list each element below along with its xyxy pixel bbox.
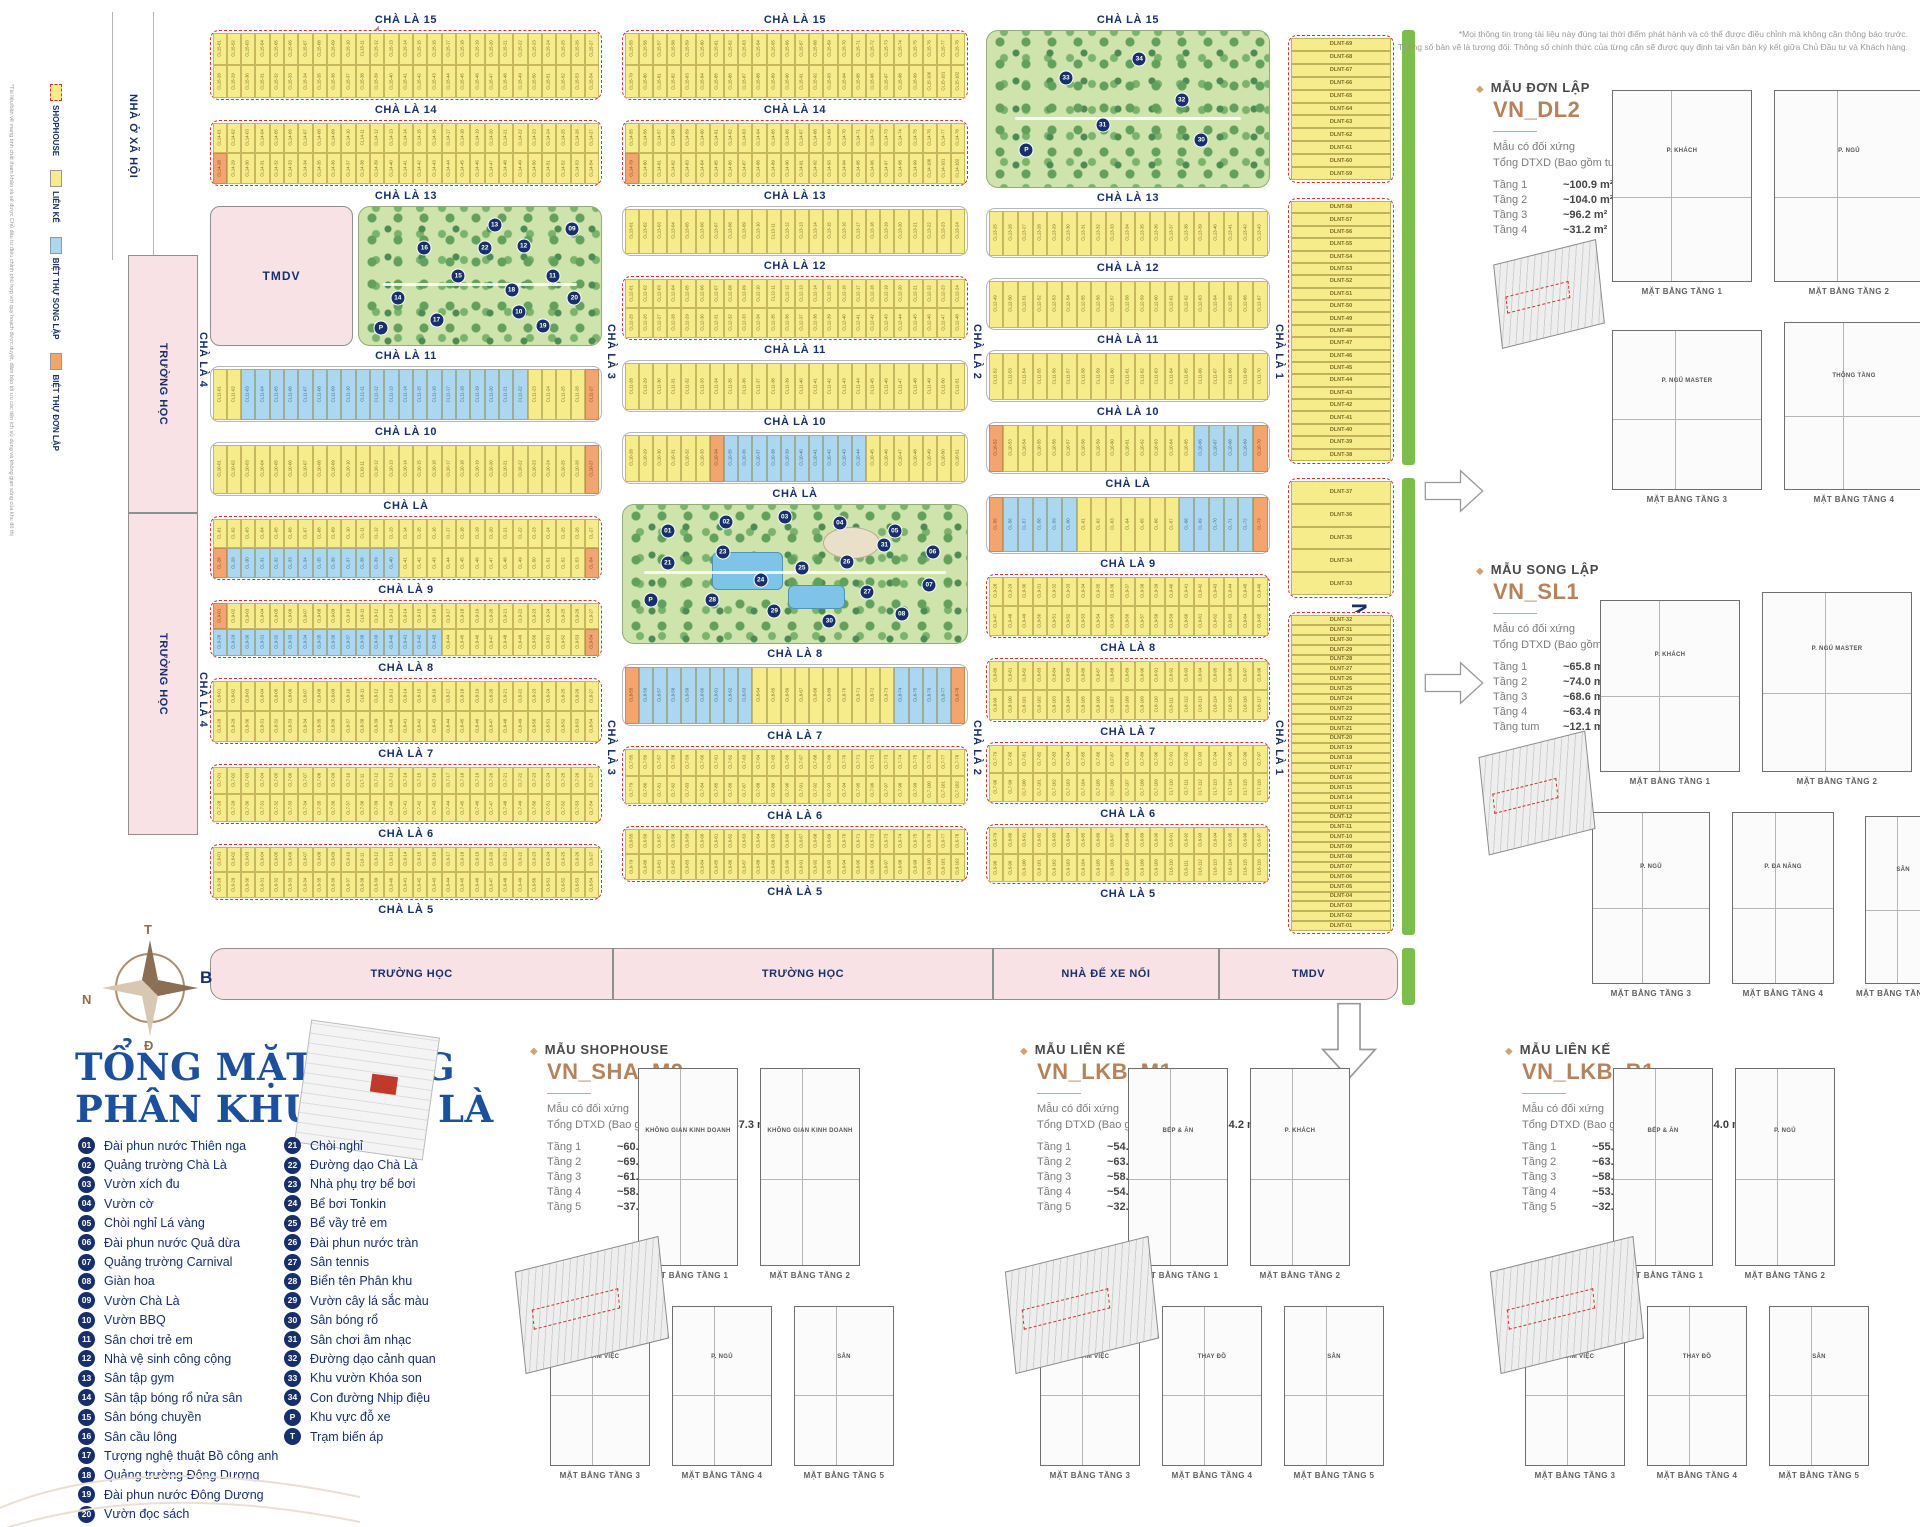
lot: CL15-42 [413,65,427,98]
lot: CL11-58 [1077,353,1092,400]
lot: CL15-95 [852,65,866,98]
lot: CL13-43 [1253,211,1268,256]
lot: CL6-95 [852,854,866,880]
lot: CL10-61 [1121,425,1136,472]
lot: CL11-56 [1047,353,1062,400]
lot: CL6-06 [284,847,298,873]
lot: CL9-18 [456,603,470,630]
lot-block: CL7-01CL7-02CL7-03CL7-04CL7-05CL7-06CL7-… [210,764,602,824]
lot: CL10-21 [499,445,513,494]
lot-row: CL-28CL-29CL-30CL-31CL-32CL-33CL-34CL-35… [213,548,600,578]
lot: CL7-04 [255,767,269,795]
park-path [644,571,947,574]
lot: CL10-24 [542,445,556,494]
lot: CL11-31 [667,363,681,410]
lot: CL10-54 [1018,425,1033,472]
lot-row: CL14-79CL14-80CL14-81CL14-82CL14-83CL14-… [625,153,966,184]
floorplan: KHÔNG GIAN KINH DOANHMẶT BẰNG TẦNG 2 [760,1068,860,1280]
lot: CL6-98 [894,854,908,880]
amenity-label: Đài phun nước tràn [310,1236,418,1250]
amenity-number: 28 [284,1273,301,1290]
lot: CL14-02 [227,123,241,154]
lot: CL8-96 [1224,661,1239,691]
floorplan: THAY ĐỒMẶT BẰNG TẦNG 4 [1162,1306,1262,1480]
lot: CL13-13 [795,209,809,254]
lot: CL8-107 [1106,690,1121,720]
lot: CL14-20 [485,123,499,154]
lot: CL-58 [1033,497,1048,552]
lot: CL10-18 [456,445,470,494]
lot: CL6-03 [241,847,255,873]
dlnt-lot: DLNT-67 [1291,64,1391,77]
lot: CL14-77 [937,123,951,154]
lot: CL13-34 [1121,211,1136,256]
amenity-item: 06Đài phun nước Quả dừa [78,1233,278,1252]
lot: CL6-96 [1238,827,1253,855]
lot: CL8-56 [639,667,653,724]
lot: CL7-85 [710,776,724,804]
floorplan-caption: MẶT BẰNG TẦNG 4 [1657,1471,1738,1480]
lot: CL-18 [456,519,470,549]
lot: CL7-09 [327,767,341,795]
lot-block: CL8-01CL8-02CL8-03CL8-04CL8-05CL8-06CL8-… [210,678,602,744]
lot: CL11-68 [1224,353,1239,400]
street-label: CHÀ LÀ 8 [210,662,602,678]
amenity-number: 21 [284,1137,301,1154]
lot: CL12-61 [1165,281,1180,328]
decorative-waves [0,1327,360,1527]
lot: CL8-99 [989,690,1004,720]
lot: CL15-91 [795,65,809,98]
amenity-badge: 13 [488,218,501,231]
lot: CL8-73 [880,667,894,724]
lot: CL7-40 [384,794,398,822]
lot: CL7-95 [852,776,866,804]
floor-label: Tầng 2 [547,1156,617,1171]
lot: CL9-49 [1018,606,1033,636]
lot: CL7-52 [556,794,570,822]
room-label: P. KHÁCH [1613,148,1751,154]
dashed-swatch-icon [50,84,62,101]
dlnt-lot: DLNT-66 [1291,77,1391,90]
dlnt-lot: DLNT-64 [1291,103,1391,116]
lot: CL15-01 [213,33,227,66]
lot: CL-36 [327,548,341,578]
lot: CL15-49 [513,65,527,98]
lot: CL6-91 [795,854,809,880]
model-header: ◆MẪU SHOPHOUSE [530,1042,720,1057]
lot: CL6-88 [752,854,766,880]
lot: CL9-34 [298,629,312,656]
lot: CL15-34 [298,65,312,98]
lot: CL11-66 [1194,353,1209,400]
lot: CL7-64 [752,749,766,777]
lot: CL9-46 [1253,577,1268,607]
lot: CL7-89 [767,776,781,804]
street-cha-la-2a: CHÀ LÀ 2 [971,292,983,412]
lot: CL7-88 [1121,745,1136,774]
lot: CL11-39 [781,363,795,410]
lot: CL-21 [499,519,513,549]
amenity-badge: 06 [926,545,939,558]
lot: CL11-70 [1253,353,1268,400]
lot: CL8-57 [653,667,667,724]
lot: CL6-33 [284,872,298,898]
lot: CL7-115 [1238,773,1253,802]
room-label: KHÔNG GIAN KINH DOANH [761,1128,859,1134]
lot: CL10-66 [1194,425,1209,472]
lot: CL6-46 [470,872,484,898]
lot: CL-64 [1121,497,1136,552]
amenity-badge: P [644,594,657,607]
lot: CL6-108 [1135,854,1150,882]
floorplan-caption: MẶT BẰNG TẦNG 5 [1779,1471,1860,1480]
lot: CL7-79 [625,776,639,804]
lot: CL-05 [270,519,284,549]
lot: CL10-11 [356,445,370,494]
facility-segment: TRƯỜNG HỌC [210,948,613,1000]
lot: CL15-52 [556,65,570,98]
lot: CL14-65 [767,123,781,154]
lot: CL9-07 [298,603,312,630]
lot: CL11-64 [1165,353,1180,400]
dlnt-lot: DLNT-37 [1291,481,1391,504]
lot-band-west: CHÀ LÀ 15CL15-01CL15-02CL15-03CL15-04CL1… [210,14,602,920]
lot: CL12-60 [1150,281,1165,328]
lot: CL7-20 [485,767,499,795]
lot: CL6-94 [1209,827,1224,855]
model-type-label: MẪU SONG LẬP [1491,562,1599,577]
lot: CL15-59 [681,33,695,66]
street-label: CHÀ LÀ 6 [210,828,602,844]
lot: CL10-15 [413,445,427,494]
lot: CL6-13 [384,847,398,873]
lot: CL8-87 [1091,661,1106,691]
lot: CL9-21 [499,603,513,630]
lot: CL12-47 [937,308,951,338]
lot: CL12-55 [1077,281,1092,328]
lot: CL8-80 [989,661,1004,691]
lot: CL7-57 [653,749,667,777]
lot: CL9-17 [442,603,456,630]
amenity-item: 07Quảng trường Carnival [78,1252,278,1271]
lot: CL12-18 [866,279,880,309]
lot: CL10-30 [653,435,667,482]
lot: CL15-61 [710,33,724,66]
lot: CL11-67 [1209,353,1224,400]
lot: CL11-63 [1150,353,1165,400]
lot: CL12-26 [639,308,653,338]
amenity-badge: 10 [512,305,525,318]
lot: CL14-24 [542,123,556,154]
lot: CL14-25 [556,123,570,154]
lot: CL9-60 [1179,606,1194,636]
lot: CL8-17 [442,681,456,712]
floorplan-caption: MẶT BẰNG TẦNG 3 [1050,1471,1131,1480]
dlnt-lot: DLNT-20 [1291,734,1391,744]
lot-row: CL8-28CL8-29CL8-30CL8-31CL8-32CL8-33CL8-… [213,711,600,742]
lot: CL10-16 [427,445,441,494]
lot: CL11-13 [384,369,398,420]
lot: CL12-63 [1194,281,1209,328]
lot: CL15-12 [370,33,384,66]
lot: CL7-113 [1209,773,1224,802]
lot: CL-68 [1179,497,1194,552]
amenity-label: Đài phun nước Thiên nga [104,1139,246,1153]
amenity-badge: 01 [661,525,674,538]
lot: CL6-10 [341,847,355,873]
lot: CL9-24 [542,603,556,630]
lot: CL10-09 [327,445,341,494]
model-header: ◆MẪU LIÊN KẾ [1020,1042,1210,1057]
lot: CL8-110 [1150,690,1165,720]
lot: CL7-83 [1047,745,1062,774]
lot-block: CL11-01CL11-02CL11-03CL11-04CL11-05CL11-… [210,366,602,422]
yellow-swatch-icon [50,170,62,187]
lot: CL7-02 [227,767,241,795]
lot: CL9-50 [1033,606,1048,636]
lot: CL10-55 [1033,425,1048,472]
lot: CL6-79 [989,827,1004,855]
lot: CL-41 [399,548,413,578]
lot: CL10-28 [625,435,639,482]
lot: CL10-56 [1047,425,1062,472]
lot: CL14-57 [653,123,667,154]
dlnt-lot: DLNT-09 [1291,842,1391,852]
floorplan-caption: MẶT BẰNG TẦNG 3 [1535,1471,1616,1480]
lot: CL12-30 [696,308,710,338]
lot: CL9-35 [313,629,327,656]
plan-row-1: P. KHÁCHMẶT BẰNG TẦNG 1P. NGỦ MASTERMẶT … [1600,592,1918,786]
lot: CL-40 [384,548,398,578]
lot: CL7-87 [1106,745,1121,774]
lot: CL13-38 [1179,211,1194,256]
facility-strip: TRƯỜNG HỌCTRƯỜNG HỌCNHÀ ĐỂ XE NỔITMDV [210,948,1398,1000]
street-label: CHÀ LÀ 8 [986,642,1270,658]
lot: CL6-24 [542,847,556,873]
lot: CL14-100 [923,153,937,184]
lot: CL9-39 [370,629,384,656]
lot: CL7-69 [823,749,837,777]
floor-label: Tầng 5 [1522,1201,1592,1216]
floorplan-caption: MẶT BẰNG TẦNG 2 [1797,777,1878,786]
lot-row: CL9-01CL9-02CL9-03CL9-04CL9-05CL9-06CL9-… [213,603,600,630]
lot: CL14-50 [528,153,542,184]
lot: CL14-56 [639,123,653,154]
lot: CL12-08 [724,279,738,309]
school-2-label: TRƯỜNG HỌC [157,633,169,715]
lot: CL-65 [1135,497,1150,552]
lot: CL6-54 [585,872,599,898]
lot: CL-29 [227,548,241,578]
lot: CL14-11 [356,123,370,154]
lot: CL11-43 [838,363,852,410]
lot: CL15-13 [384,33,398,66]
lot: CL13-18 [866,209,880,254]
lot: CL7-17 [442,767,456,795]
amenity-item: 23Nhà phụ trợ bể bơi [284,1175,436,1194]
lot: CL7-44 [442,794,456,822]
amenity-number: 05 [78,1215,95,1232]
lot: CL12-50 [1003,281,1018,328]
floor-label: Tầng 3 [1522,1171,1592,1186]
lot: CL9-31 [1033,577,1048,607]
lot: CL6-51 [542,872,556,898]
street-label: CHÀ LÀ 14 [210,104,602,120]
lot: CL8-46 [470,711,484,742]
lot: CL14-30 [241,153,255,184]
lot: CL11-16 [427,369,441,420]
lot: CL-07 [298,519,312,549]
lot: CL8-116 [1238,690,1253,720]
lot: CL6-114 [1224,854,1239,882]
amenity-item: 03Vườn xích đu [78,1175,278,1194]
amenity-label: Biển tên Phân khu [310,1274,412,1288]
lot: CL8-39 [370,711,384,742]
dlnt-lot: DLNT-34 [1291,549,1391,572]
lot: CL15-102 [951,65,965,98]
floorplan-drawing: THÔNG TẦNG [1784,322,1920,490]
lot: CL10-23 [528,445,542,494]
room-label: SÂN [795,1354,893,1360]
lot: CL6-58 [667,829,681,855]
street-cha-la-3a: CHÀ LÀ 3 [605,292,617,412]
lot: CL15-39 [370,65,384,98]
lot: CL11-62 [1135,353,1150,400]
lot: CL8-114 [1209,690,1224,720]
lot: CL10-04 [255,445,269,494]
lot: CL15-14 [399,33,413,66]
lot: CL15-86 [724,65,738,98]
lot: CL12-03 [653,279,667,309]
lot: CL6-38 [356,872,370,898]
lot: CL12-44 [894,308,908,338]
lot: CL6-25 [556,847,570,873]
lot: CL12-58 [1121,281,1136,328]
street-label: CHÀ LÀ 13 [210,190,602,206]
legend-label: SHOPHOUSE [52,105,61,156]
lot: CL8-19 [470,681,484,712]
room-label: P. ĐA NĂNG [1733,864,1833,870]
floorplan: SÂNMẶT BẰNG TẦNG TUM [1856,816,1920,998]
dlnt-lot: DLNT-65 [1291,90,1391,103]
lot: CL9-32 [270,629,284,656]
lot: CL6-99 [909,854,923,880]
lot: CL9-44 [1224,577,1239,607]
lot: CL8-29 [227,711,241,742]
lot-row: CL9-47CL9-48CL9-49CL9-50CL9-51CL9-52CL9-… [989,606,1268,636]
dlnt-lot: DLNT-15 [1291,783,1391,793]
lot: CL15-55 [625,33,639,66]
lot: CL11-41 [809,363,823,410]
lot: CL9-38 [356,629,370,656]
dlnt-lot: DLNT-14 [1291,793,1391,803]
lot: CL7-73 [880,749,894,777]
room-label: THAY ĐỒ [1163,1354,1261,1360]
lot: CL7-53 [571,794,585,822]
lot: CL8-67 [795,667,809,724]
dlnt-lot: DLNT-16 [1291,773,1391,783]
lot: CL6-94 [838,854,852,880]
lot: CL14-89 [767,153,781,184]
lot: CL10-40 [795,435,809,482]
lot: CL13-05 [681,209,695,254]
lot: CL8-49 [513,711,527,742]
lot: CL6-64 [752,829,766,855]
floor-label: Tầng 4 [547,1186,617,1201]
lot: CL13-22 [923,209,937,254]
lot: CL14-69 [823,123,837,154]
lot: CL14-05 [270,123,284,154]
park-path [383,283,577,286]
lot: CL13-35 [1135,211,1150,256]
lot: CL8-100 [1003,690,1018,720]
amenity-badge: 32 [1175,93,1188,106]
floor-value: ~31.2 m² [1563,224,1607,239]
lot: CL14-22 [513,123,527,154]
lot: CL15-11 [356,33,370,66]
lot: CL8-71 [852,667,866,724]
lot-row: CL9-28CL9-29CL9-30CL9-31CL9-32CL9-33CL9-… [989,577,1268,607]
room-label: THÔNG TẦNG [1785,373,1920,379]
lot: CL12-19 [880,279,894,309]
lot: CL15-101 [937,65,951,98]
lot: CL6-09 [327,847,341,873]
floorplan: P. KHÁCHMẶT BẰNG TẦNG 1 [1600,600,1740,786]
lot: CL12-67 [1253,281,1268,328]
lot: CL9-37 [341,629,355,656]
lot: CL7-10 [341,767,355,795]
lot: CL-73 [1253,497,1268,552]
color-legend: SHOPHOUSELIÊN KẾBIỆT THỰ SONG LẬPBIỆT TH… [32,84,62,644]
floorplan-drawing: THAY ĐỒ [1162,1306,1262,1466]
dlnt-lot: DLNT-05 [1291,882,1391,892]
lot-row: CL12-01CL12-02CL12-03CL12-04CL12-05CL12-… [625,279,966,309]
dlnt-lot: DLNT-10 [1291,832,1391,842]
lot: CL8-106 [1091,690,1106,720]
lot: CL7-23 [528,767,542,795]
lot: CL7-19 [470,767,484,795]
lot: CL14-23 [528,123,542,154]
compass-icon: T B N Đ [88,926,212,1050]
lot: CL7-08 [313,767,327,795]
lot: CL8-21 [499,681,513,712]
amenity-badge: 31 [878,539,891,552]
lot: CL9-36 [1106,577,1121,607]
lot: CL13-41 [1224,211,1239,256]
lot-row: CL7-98CL7-99CL7-100CL7-101CL7-102CL7-103… [989,773,1268,802]
lot: CL11-19 [470,369,484,420]
lot: CL9-39 [1150,577,1165,607]
lot: CL8-12 [370,681,384,712]
lot: CL-31 [255,548,269,578]
lot: CL10-19 [470,445,484,494]
lot: CL14-37 [341,153,355,184]
lot: CL9-49 [513,629,527,656]
lot: CL11-44 [852,363,866,410]
lot: CL14-98 [894,153,908,184]
lot: CL7-99 [1003,773,1018,802]
lot: CL6-52 [556,872,570,898]
lot: CL8-36 [327,711,341,742]
lot: CL12-09 [738,279,752,309]
floorplan-drawing: P. NGỦ [672,1306,772,1466]
lot: CL14-10 [341,123,355,154]
lot: CL6-100 [1018,854,1033,882]
lot: CL12-12 [781,279,795,309]
lot: CL6-05 [270,847,284,873]
lot: CL-09 [327,519,341,549]
